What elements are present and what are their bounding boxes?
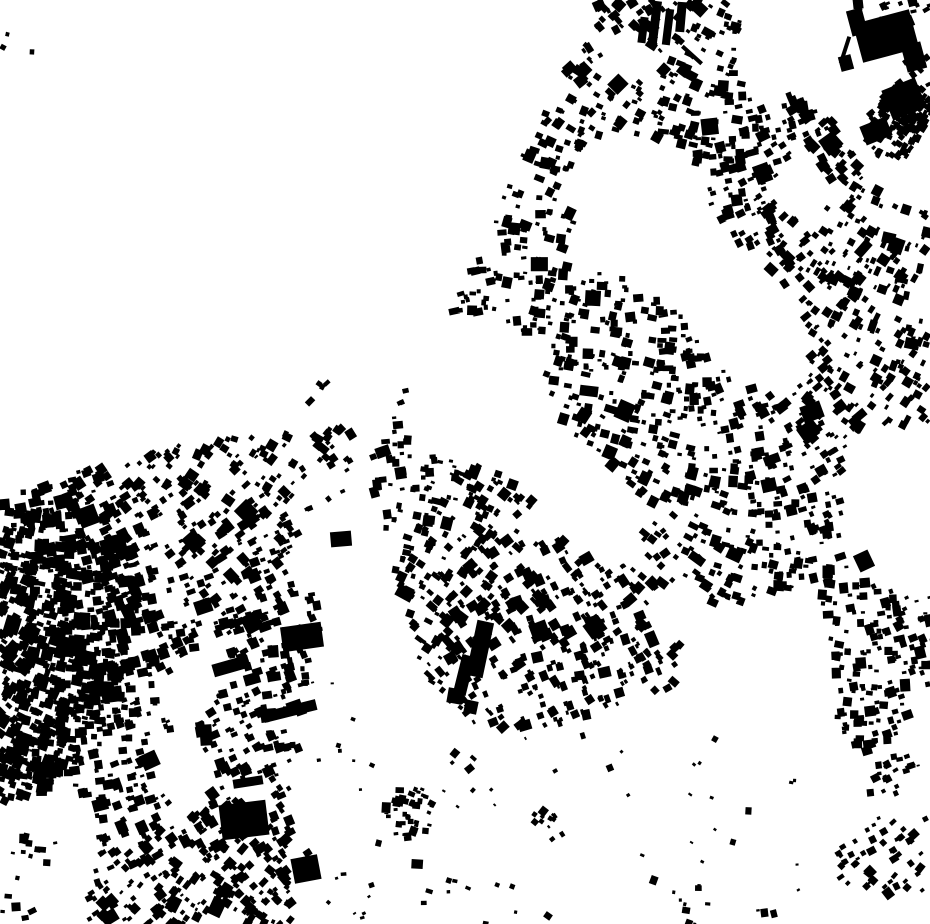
building-footprint-canvas xyxy=(0,0,930,924)
figure-ground-map xyxy=(0,0,930,924)
